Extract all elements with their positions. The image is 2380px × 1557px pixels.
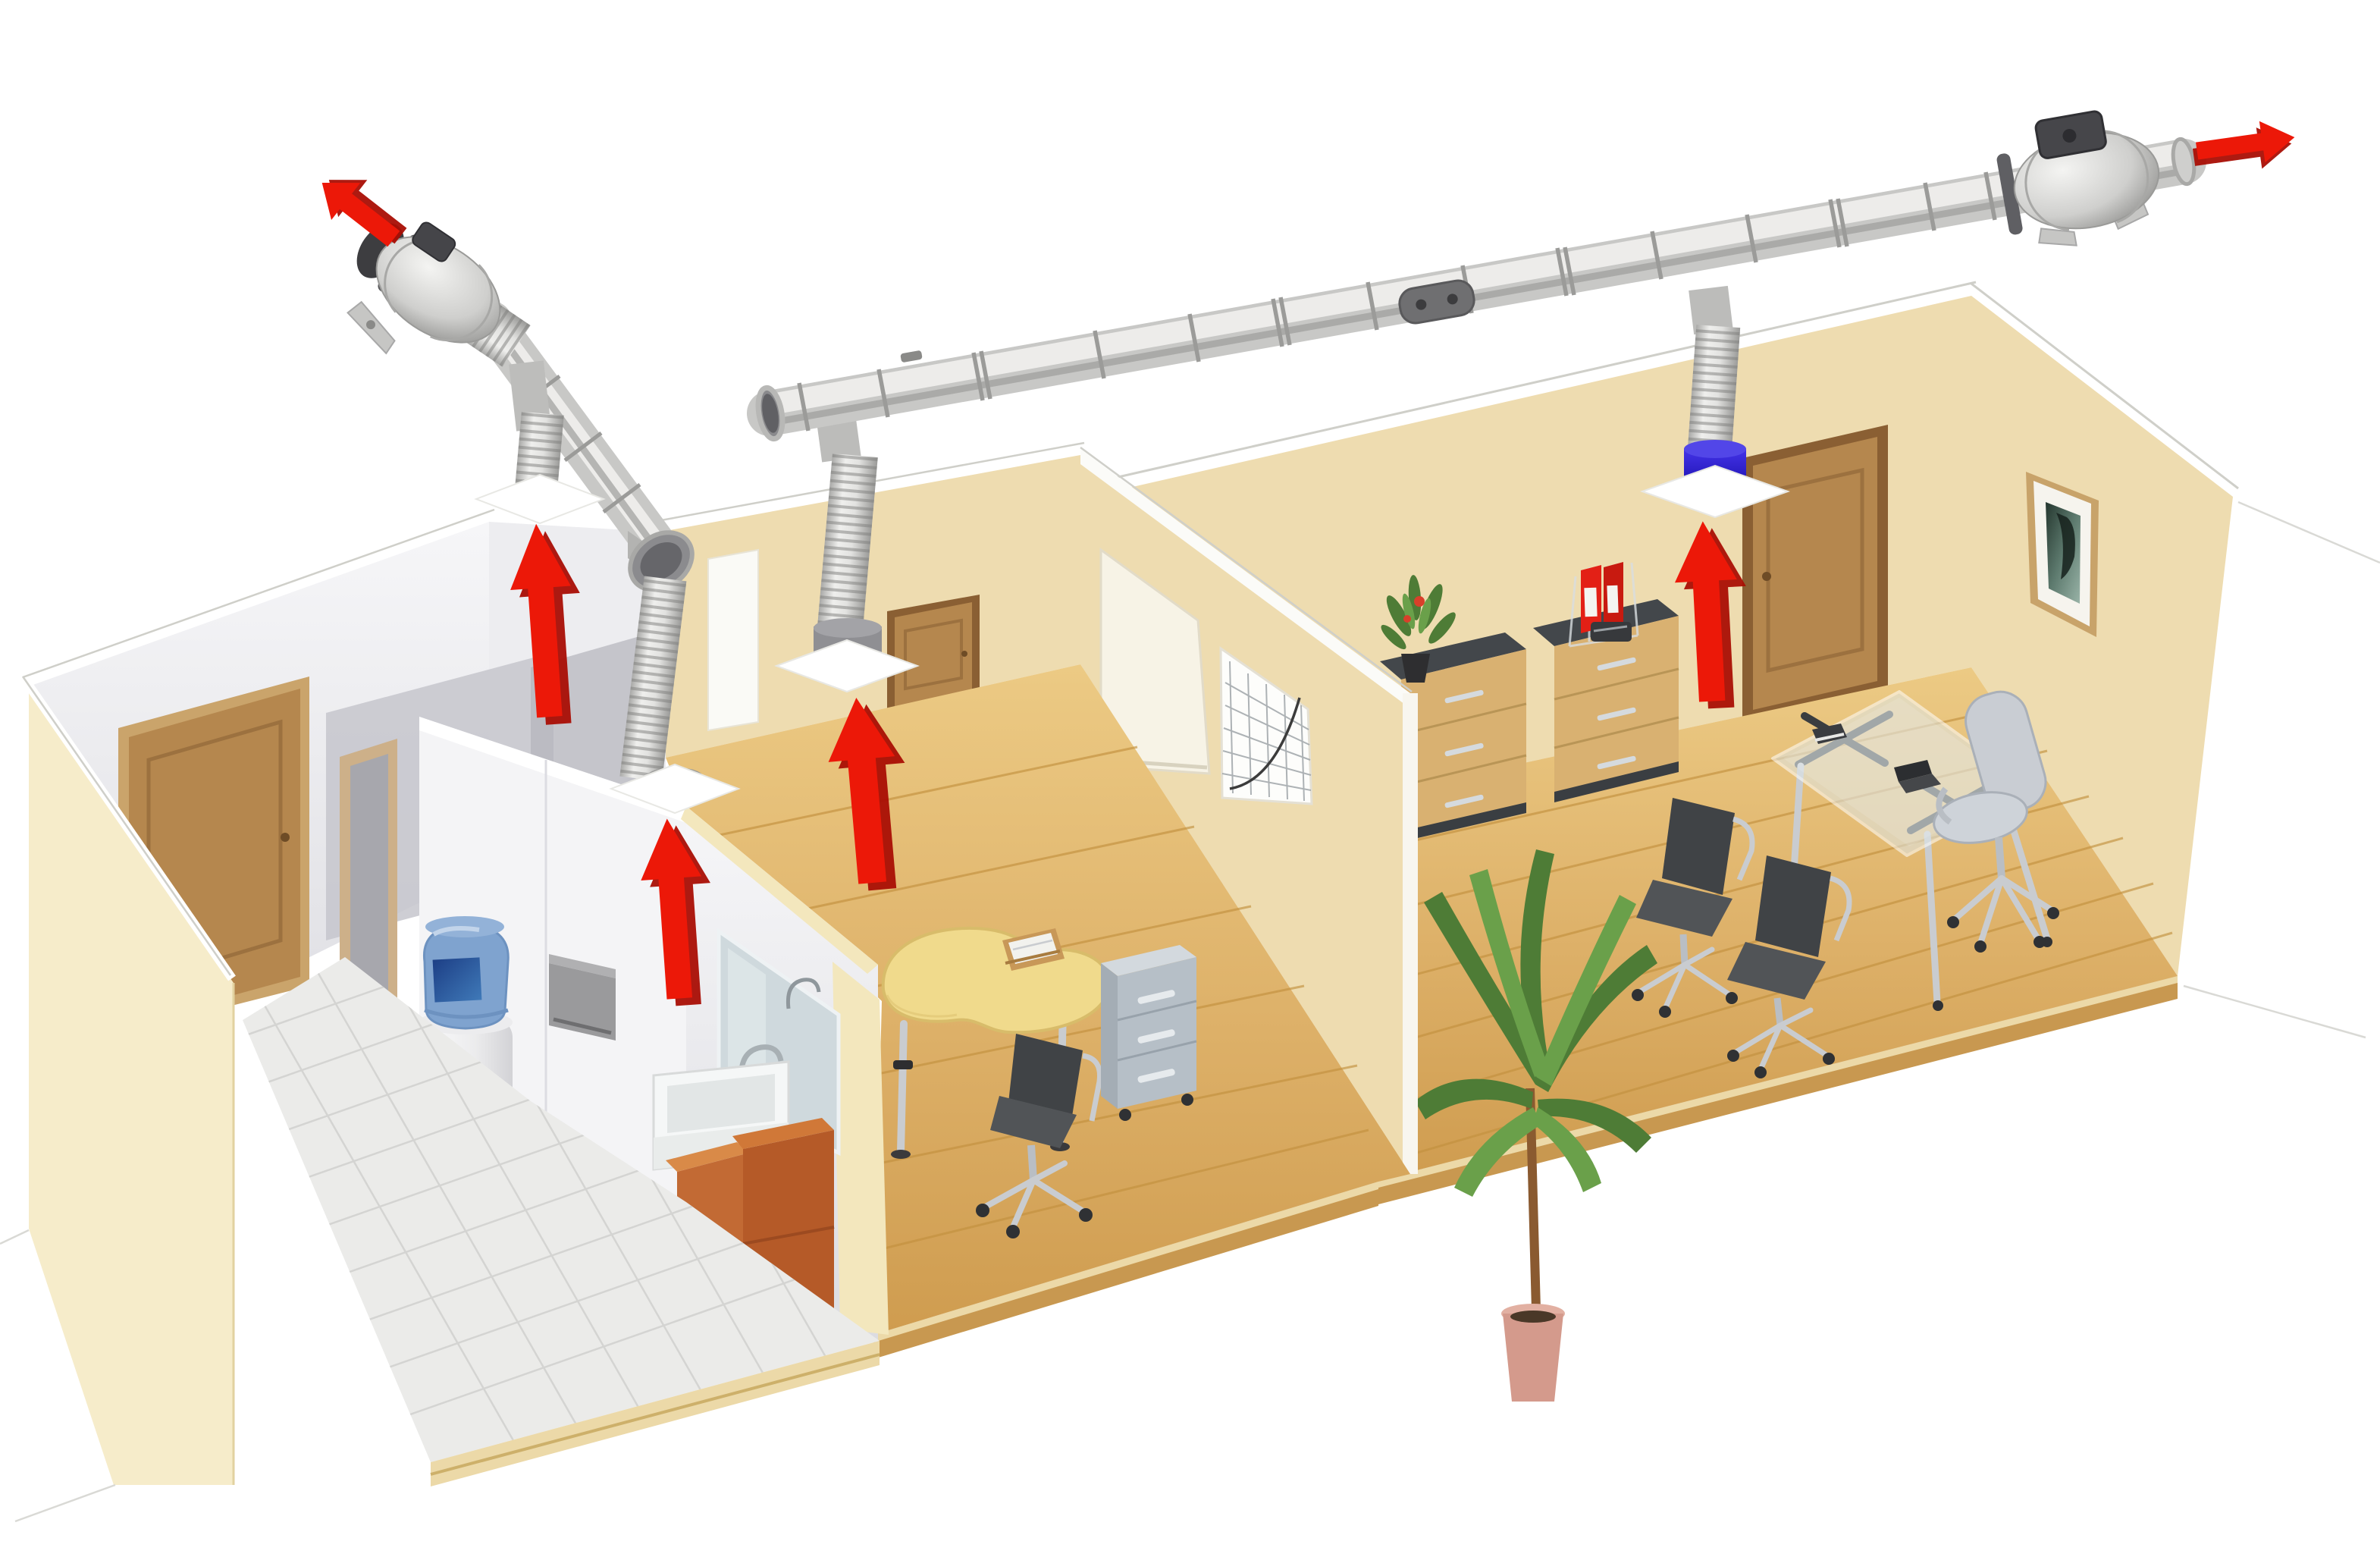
door-knob <box>1762 572 1771 581</box>
inline-duct-fan-west <box>318 198 523 396</box>
wall-panel <box>708 550 758 730</box>
exhaust-arrow-east <box>2190 117 2299 178</box>
cut-wall-front-edge <box>833 962 889 1335</box>
bottle <box>424 916 508 1028</box>
ventilation-cutaway-scene <box>0 0 2380 1557</box>
paper-towel-dispenser <box>549 954 616 1041</box>
desk-phone <box>1591 622 1632 642</box>
office-2-door <box>1742 425 1888 717</box>
illustration-canvas <box>0 0 2380 1557</box>
inline-duct-fan-east <box>1991 102 2168 257</box>
